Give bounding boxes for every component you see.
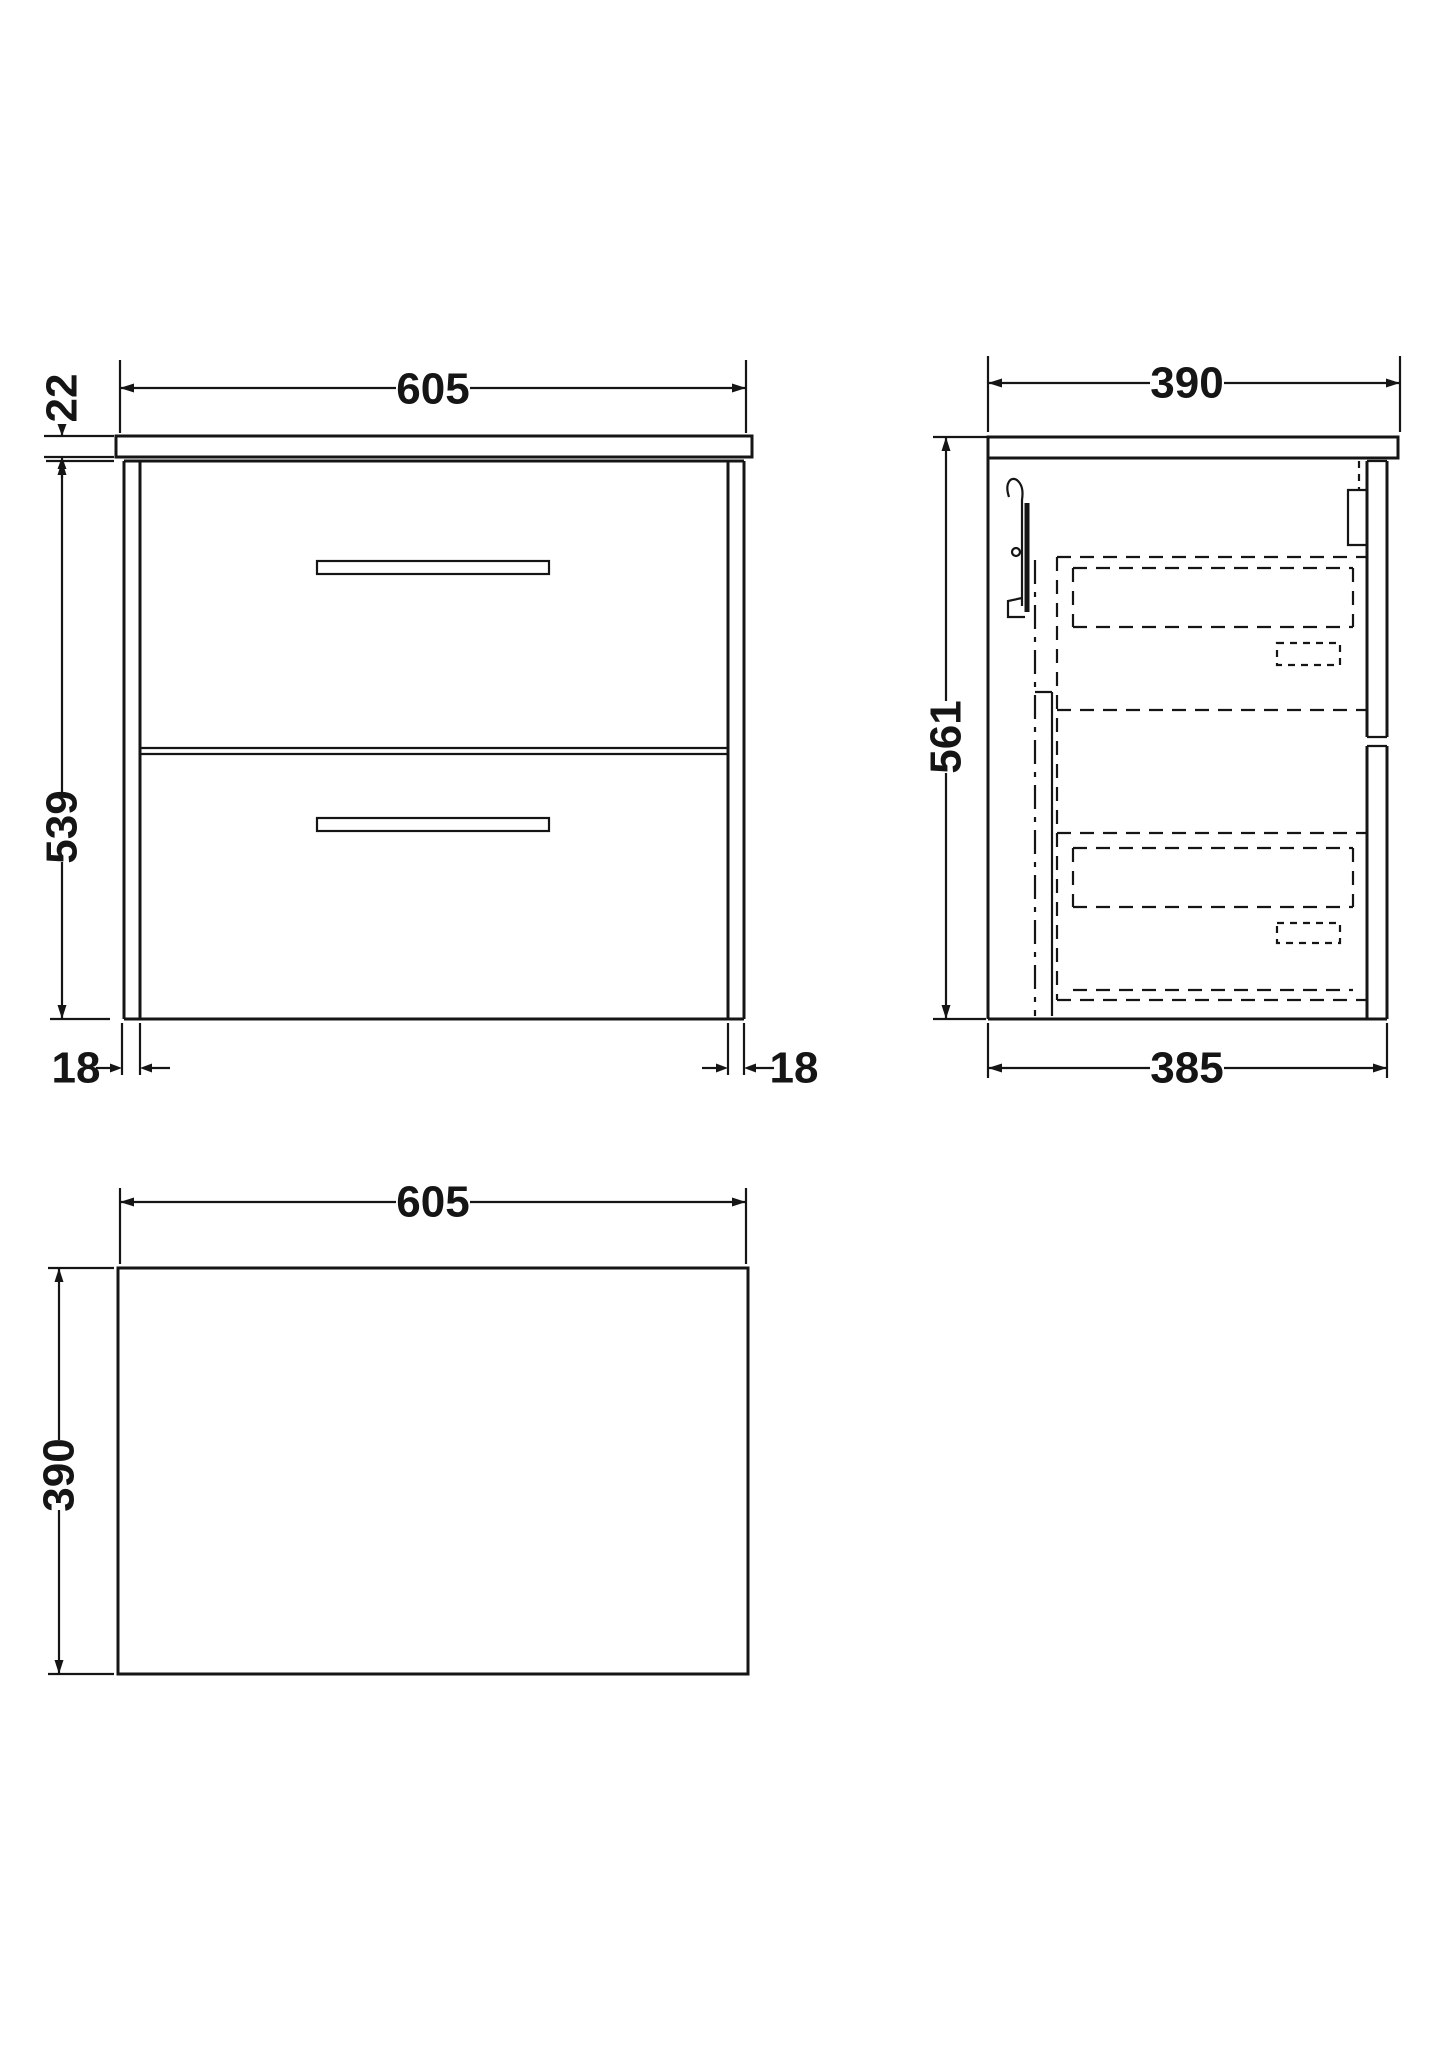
drawer-runner (1277, 923, 1340, 943)
arrowhead (55, 1660, 64, 1674)
dim-label-front-height: 539 (38, 790, 87, 863)
arrowhead (58, 1005, 67, 1019)
drawer-1-hidden-outline (1057, 557, 1367, 1000)
dim-front-countertop: 22 (38, 374, 115, 478)
vanity-unit-dimension-diagram: 605 22 539 (0, 0, 1445, 2045)
hanging-rail-notch (1348, 461, 1367, 545)
drawer-2-hidden-outline (1057, 833, 1367, 1000)
arrowhead (58, 424, 67, 436)
arrowhead (140, 1064, 152, 1073)
dim-label-front-panel-right: 18 (770, 1044, 819, 1093)
drawer-handle-top (317, 561, 549, 574)
arrowhead (120, 384, 134, 393)
dim-front-panel-right: 18 (702, 1023, 818, 1093)
side-view: 390 561 385 (922, 356, 1401, 1093)
arrowhead (110, 1064, 122, 1073)
arrowhead (942, 1005, 951, 1019)
back-panel-profile (1035, 560, 1052, 1016)
arrowhead (732, 1198, 746, 1207)
dim-side-bottom-depth: 385 (988, 1023, 1387, 1093)
dim-label-plan-width: 605 (396, 1178, 469, 1227)
dim-label-side-depth: 390 (1150, 359, 1223, 408)
dim-label-front-width: 605 (396, 365, 469, 414)
countertop-plan (118, 1268, 748, 1674)
arrowhead (716, 1064, 728, 1073)
arrowhead (744, 1064, 756, 1073)
arrowhead (55, 1268, 64, 1282)
arrowhead (988, 379, 1002, 388)
countertop-side (988, 437, 1398, 458)
technical-drawing-sheet: 605 22 539 (0, 0, 1445, 2045)
dim-front-height: 539 (38, 461, 115, 1019)
dim-front-width: 605 (120, 360, 746, 433)
dim-front-panel-left: 18 (52, 1023, 170, 1093)
dim-label-side-height: 561 (922, 700, 971, 773)
drawer-fronts-profile (1367, 461, 1387, 1019)
drawer-handle-bottom (317, 818, 549, 831)
front-view: 605 22 539 (38, 360, 819, 1093)
dim-plan-width: 605 (120, 1178, 746, 1265)
dim-label-front-countertop: 22 (38, 374, 87, 423)
dim-side-depth: 390 (988, 356, 1400, 432)
dim-side-height: 561 (922, 437, 1007, 1019)
arrowhead (988, 1064, 1002, 1073)
arrowhead (1386, 379, 1400, 388)
dim-label-side-bottom-depth: 385 (1150, 1044, 1223, 1093)
dim-label-front-panel-left: 18 (52, 1044, 101, 1093)
arrowhead (942, 437, 951, 451)
wall-bracket-icon (1007, 479, 1027, 617)
arrowhead (1373, 1064, 1387, 1073)
arrowhead (732, 384, 746, 393)
countertop-front (116, 436, 752, 457)
drawer-runner (1277, 643, 1340, 665)
plan-view: 605 390 (35, 1178, 749, 1675)
arrowhead (120, 1198, 134, 1207)
dim-plan-depth: 390 (35, 1268, 115, 1674)
dim-label-plan-depth: 390 (35, 1438, 84, 1511)
